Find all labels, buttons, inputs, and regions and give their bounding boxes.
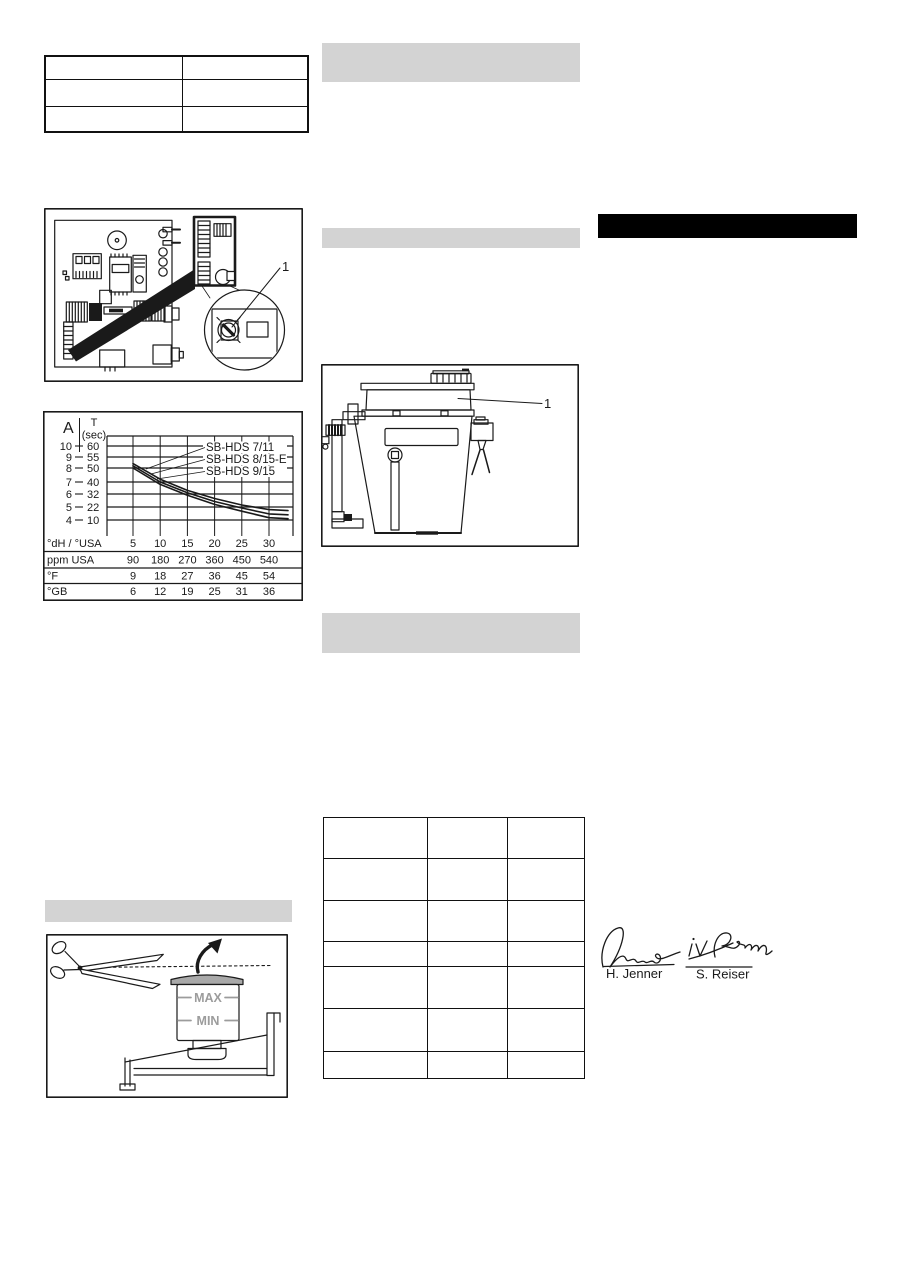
section-header-bar-4: [45, 900, 292, 922]
svg-text:5: 5: [66, 502, 72, 514]
buzzer-icon: [108, 231, 127, 250]
level-sensor: [471, 417, 493, 475]
table-cell: [508, 967, 585, 1009]
left-pipe-assembly: [322, 412, 365, 528]
label-plate: [385, 429, 458, 446]
flange-band: [362, 410, 474, 416]
x-row-label: °F: [47, 571, 58, 583]
signature-left: H. Jenner: [602, 928, 680, 981]
svg-text:25: 25: [208, 586, 220, 598]
lid-body: [366, 390, 471, 410]
table-cell: [324, 967, 428, 1009]
svg-text:12: 12: [154, 586, 166, 598]
scissors-icon: [49, 939, 164, 988]
pcb-figure: 1: [44, 208, 303, 382]
tank-body: [354, 416, 472, 533]
level-tube: [391, 462, 399, 530]
svg-text:540: 540: [260, 555, 278, 567]
svg-text:32: 32: [87, 489, 99, 501]
handwritten-signature: [602, 928, 680, 967]
max-label: MAX: [194, 991, 222, 1005]
bottom-component: [100, 350, 125, 367]
series-label: SB-HDS 9/15: [206, 466, 275, 478]
series-label: SB-HDS 7/11: [206, 442, 274, 454]
svg-text:50: 50: [87, 463, 99, 475]
spec-table-top-left: [44, 55, 309, 133]
x-row-label: °GB: [47, 586, 67, 598]
table-cell: [508, 818, 585, 859]
svg-text:40: 40: [87, 477, 99, 489]
svg-text:31: 31: [236, 586, 248, 598]
svg-text:360: 360: [205, 555, 223, 567]
svg-text:270: 270: [178, 555, 196, 567]
lid-plate: [361, 383, 474, 390]
container-body: [348, 369, 474, 535]
ic-block-2: [133, 255, 146, 292]
x-row-label: ppm USA: [47, 555, 95, 567]
table-cell: [428, 818, 508, 859]
svg-text:22: 22: [87, 502, 99, 514]
chart-y-axis: 1060955850740632522410: [60, 441, 100, 527]
section-header-bar-3: [322, 613, 580, 653]
open-arrow-icon: [197, 939, 222, 973]
table-cell: [508, 901, 585, 942]
table-cell: [508, 942, 585, 967]
svg-text:5: 5: [130, 538, 136, 550]
svg-text:8: 8: [66, 463, 72, 475]
chart-x-axis-rows: °dH / °USA51015202530ppm USA901802703604…: [45, 538, 302, 598]
svg-text:36: 36: [263, 586, 275, 598]
section-header-bar-2: [322, 228, 580, 248]
table-cell: [183, 107, 309, 133]
svg-text:7: 7: [66, 477, 72, 489]
table-cell: [508, 1009, 585, 1052]
svg-text:18: 18: [154, 571, 166, 583]
svg-text:9: 9: [130, 571, 136, 583]
printed-name-right: S. Reiser: [696, 967, 750, 982]
screw-cap: [431, 369, 471, 384]
table-cell: [45, 80, 183, 107]
svg-text:45: 45: [236, 571, 248, 583]
svg-text:6: 6: [130, 586, 136, 598]
inverted-section-bar: [598, 214, 857, 238]
magnifier-line-left: [202, 286, 210, 298]
table-cell: [324, 901, 428, 942]
led-row: [159, 230, 167, 277]
svg-text:25: 25: [236, 538, 248, 550]
handwritten-signature: [714, 933, 772, 957]
svg-text:10: 10: [154, 538, 166, 550]
svg-text:20: 20: [208, 538, 220, 550]
svg-text:30: 30: [263, 538, 275, 550]
table-cell: [508, 1052, 585, 1079]
manual-page: 1 1060955850740632522410 AT(sec) SB-HDS …: [0, 0, 900, 1273]
hardness-chart: 1060955850740632522410 AT(sec) SB-HDS 7/…: [43, 411, 303, 601]
svg-text:90: 90: [127, 555, 139, 567]
relay-component: [73, 254, 101, 279]
svg-text:54: 54: [263, 571, 275, 583]
series-label: SB-HDS 8/15-E: [206, 454, 287, 466]
table-cell: [324, 1052, 428, 1079]
svg-text:T: T: [91, 417, 98, 429]
callout-1-label: 1: [282, 259, 289, 274]
reservoir-cut-figure: MAX MIN: [46, 934, 288, 1098]
table-cell: [45, 56, 183, 80]
svg-text:6: 6: [66, 489, 72, 501]
svg-text:180: 180: [151, 555, 169, 567]
table-cell: [428, 967, 508, 1009]
table-cell: [508, 859, 585, 901]
svg-text:10: 10: [87, 515, 99, 527]
signature-right: S. Reiser: [686, 933, 772, 982]
svg-text:(sec): (sec): [82, 430, 106, 442]
table-cell: [428, 859, 508, 901]
svg-text:27: 27: [181, 571, 193, 583]
table-cell: [428, 1052, 508, 1079]
bottom-right-connector: [153, 345, 183, 364]
svg-text:36: 36: [208, 571, 220, 583]
table-cell: [324, 818, 428, 859]
ic-block-1: [110, 254, 132, 295]
printed-name-left: H. Jenner: [606, 966, 663, 981]
chart-legend: SB-HDS 7/11SB-HDS 8/15-ESB-HDS 9/15: [146, 442, 287, 480]
min-label: MIN: [197, 1014, 220, 1028]
section-header-bar-1: [322, 43, 580, 82]
table-cell: [45, 107, 183, 133]
callout-1-label: 1: [544, 396, 551, 411]
table-cell: [324, 1009, 428, 1052]
table-cell: [428, 942, 508, 967]
figure-frame: [47, 935, 287, 1097]
reservoir-cap: [171, 975, 243, 985]
table-cell: [183, 80, 309, 107]
svg-text:19: 19: [181, 586, 193, 598]
salt-container-figure: 1: [321, 364, 579, 547]
svg-text:450: 450: [233, 555, 251, 567]
table-cell: [428, 1009, 508, 1052]
svg-text:15: 15: [181, 538, 193, 550]
x-row-label: °dH / °USA: [47, 538, 102, 550]
table-cell: [183, 56, 309, 80]
svg-text:4: 4: [66, 515, 72, 527]
table-cell: [324, 942, 428, 967]
spec-table-middle: [323, 817, 585, 1079]
signature-block: H. Jenner S. Reiser: [590, 915, 870, 990]
inset-detail-box: [194, 217, 235, 286]
svg-text:A: A: [63, 420, 74, 437]
table-cell: [324, 859, 428, 901]
table-cell: [428, 901, 508, 942]
